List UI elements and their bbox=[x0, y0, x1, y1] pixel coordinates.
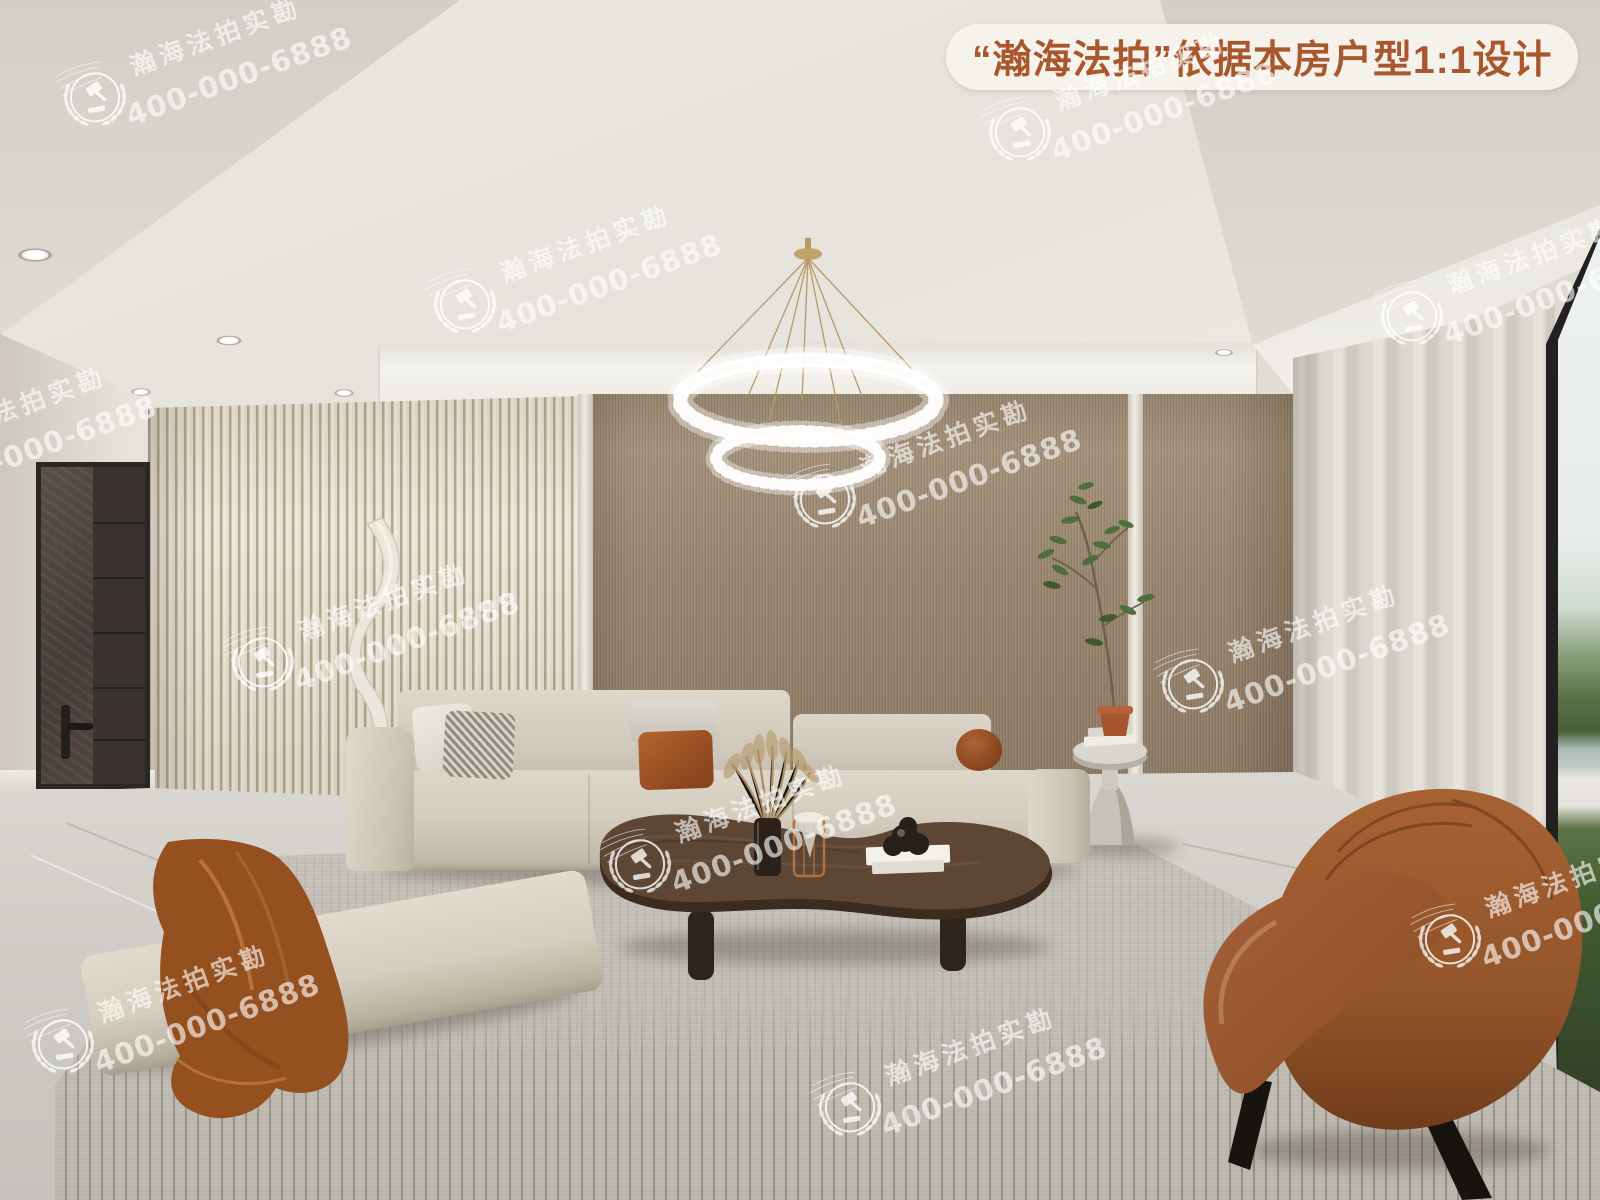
pillow-rust-ball bbox=[956, 729, 1002, 771]
window-view bbox=[1558, 236, 1600, 1120]
sofa-arm bbox=[1028, 769, 1090, 863]
door-lever-icon bbox=[67, 723, 93, 730]
wall-trim bbox=[1128, 394, 1143, 796]
entry-door bbox=[36, 462, 150, 789]
downlight-icon bbox=[1212, 348, 1236, 357]
banner-text: “瀚海法拍”依据本房户型1:1设计 bbox=[972, 29, 1552, 85]
downlight-icon bbox=[331, 388, 357, 398]
downlight-icon bbox=[212, 334, 246, 347]
door-panel-dark bbox=[93, 467, 145, 784]
living-room-photo: “瀚海法拍”依据本房户型1:1设计 bbox=[0, 0, 1600, 1200]
door-handle-icon bbox=[61, 705, 70, 759]
banner: “瀚海法拍”依据本房户型1:1设计 bbox=[946, 24, 1578, 90]
sofa-front bbox=[404, 818, 1074, 870]
sofa-arm bbox=[346, 727, 414, 871]
pillow-houndstooth bbox=[442, 710, 515, 780]
downlight-icon bbox=[12, 246, 58, 264]
pillow-rust bbox=[638, 730, 714, 791]
